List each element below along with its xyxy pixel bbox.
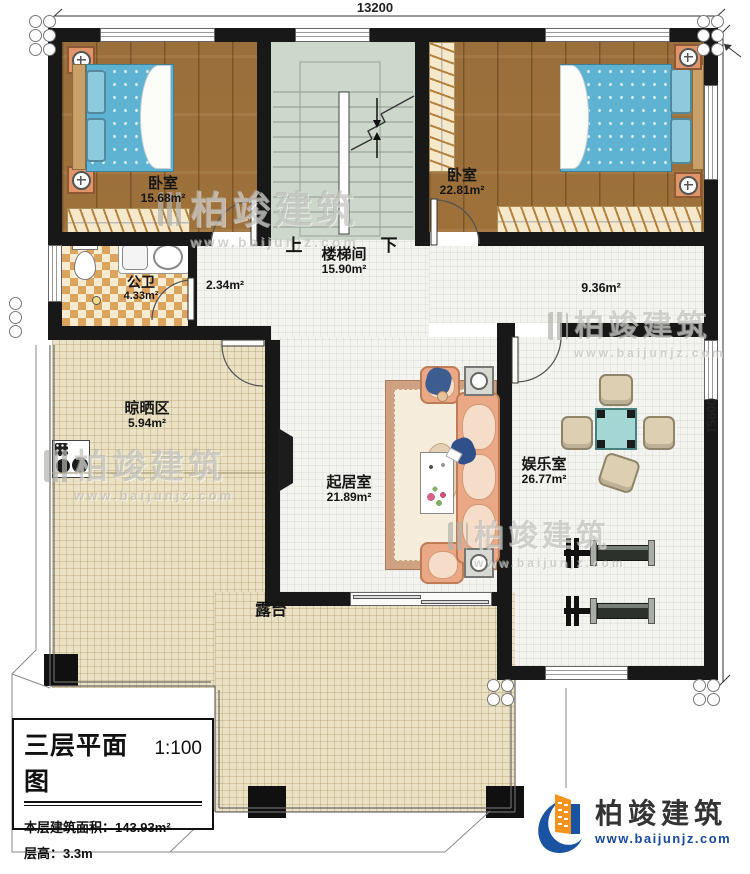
floor-corridor (429, 246, 704, 323)
sofa-cushion (462, 504, 496, 550)
sink (153, 244, 183, 270)
terrace-column (248, 786, 286, 818)
bench-pad (597, 603, 655, 619)
sliding-door (350, 592, 492, 606)
wall (560, 323, 718, 337)
window (545, 28, 670, 42)
wash-basin (122, 244, 148, 270)
chair (561, 416, 593, 450)
side-table (464, 366, 494, 396)
scroll-icon (29, 15, 42, 28)
company-logo: 柏竣建筑 www.baijunjz.com (533, 788, 731, 858)
company-logo-icon (533, 788, 587, 858)
scroll-icon (697, 43, 710, 56)
scroll-icon (697, 15, 710, 28)
room-label-terrace: 露台 (255, 602, 287, 620)
wall (55, 232, 212, 246)
scroll-icon (9, 311, 22, 324)
wall (704, 400, 718, 680)
stair-up-label: 上 (286, 236, 303, 256)
toilet (74, 251, 96, 280)
wall (370, 28, 545, 42)
chair (599, 374, 633, 406)
room-label-bathroom: 公卫 4.33m² (124, 274, 159, 303)
decorative-column (692, 678, 722, 706)
wall (265, 340, 280, 606)
decorative-column (8, 296, 24, 338)
window (704, 340, 718, 400)
wall (257, 28, 271, 246)
window (704, 85, 718, 180)
sofa (456, 392, 500, 564)
area-label-corridor: 9.36m² (581, 281, 621, 295)
bed-headboard (72, 64, 86, 170)
plan-title: 三层平面图 (24, 726, 146, 798)
wall (188, 246, 197, 326)
scroll-icon (697, 29, 710, 42)
company-url: www.baijunjz.com (595, 831, 731, 846)
terrace-column (44, 654, 78, 686)
decorative-column (28, 14, 58, 56)
scroll-icon (711, 43, 724, 56)
wall (48, 326, 271, 340)
lamp-icon (470, 372, 488, 390)
wall (258, 232, 271, 246)
wall (704, 180, 718, 340)
wall (215, 28, 295, 42)
wall (478, 232, 718, 246)
scroll-icon (43, 15, 56, 28)
floor-terrace (215, 592, 515, 812)
pillow (86, 118, 106, 162)
title-underline (24, 801, 202, 806)
company-name: 柏竣建筑 (595, 800, 731, 828)
lamp-icon (679, 48, 698, 67)
washing-machine (52, 440, 90, 478)
scroll-icon (9, 325, 22, 338)
scroll-icon (707, 679, 720, 692)
window (100, 28, 215, 42)
scroll-icon (29, 43, 42, 56)
scroll-icon (707, 693, 720, 706)
floor-area-line: 本层建筑面积：143.93m² (24, 817, 202, 836)
side-table (464, 548, 494, 578)
pillow (670, 68, 692, 114)
room-label-bedroom-left: 卧室 15.68m² (141, 175, 186, 206)
floor-drain (92, 296, 101, 305)
bench-post (648, 540, 655, 566)
terrace-column (486, 786, 524, 818)
dimension-top: 13200 (357, 0, 393, 15)
sliding-door-leaf (353, 595, 421, 599)
scroll-icon (29, 29, 42, 42)
scroll-icon (711, 29, 724, 42)
nightstand (674, 172, 702, 198)
window (48, 245, 62, 302)
scroll-icon (711, 15, 724, 28)
wall (415, 232, 430, 246)
room-label-stairwell: 楼梯间 15.90m² (321, 246, 366, 277)
wall (415, 28, 429, 246)
scroll-icon (693, 679, 706, 692)
pillow (670, 118, 692, 164)
barbell-bar (564, 550, 591, 556)
mahjong-table (595, 408, 637, 450)
tv (278, 428, 293, 492)
title-block: 三层平面图 1:100 本层建筑面积：143.93m² 层高：3.3m (12, 718, 214, 830)
plan-scale: 1:100 (154, 738, 202, 760)
washer-drum (56, 459, 70, 473)
scroll-icon (693, 693, 706, 706)
wardrobe (429, 42, 455, 172)
scroll-icon (501, 679, 514, 692)
room-label-entertainment: 娱乐室 26.77m² (521, 456, 566, 487)
lamp-icon (72, 171, 91, 190)
bench-post (590, 598, 597, 624)
scroll-icon (43, 43, 56, 56)
window (295, 28, 370, 42)
pillow (86, 70, 106, 114)
room-label-bedroom-right: 卧室 22.81m² (440, 167, 485, 198)
bed-blanket (140, 65, 171, 169)
scroll-icon (487, 679, 500, 692)
coffee-table (420, 452, 454, 514)
bench-pad (597, 545, 655, 561)
dimension-right: 15600 (704, 398, 719, 434)
scroll-icon (9, 297, 22, 310)
bench-post (648, 598, 655, 624)
chair-cushion (428, 551, 458, 579)
lamp-icon (470, 554, 488, 572)
chair (643, 416, 675, 450)
decorative-column (696, 14, 726, 56)
scroll-icon (487, 693, 500, 706)
weight-bench (564, 536, 659, 570)
room-label-drying: 晾晒区 5.94m² (124, 400, 169, 431)
room-label-living: 起居室 21.89m² (326, 474, 371, 505)
washer-drum (72, 457, 88, 473)
weight-bench (564, 594, 659, 628)
scroll-icon (43, 29, 56, 42)
floor-height-line: 层高：3.3m (24, 843, 202, 862)
person-head (437, 391, 448, 402)
area-label-hall: 2.34m² (206, 279, 244, 293)
lamp-icon (679, 176, 698, 195)
sliding-door-leaf (421, 600, 489, 604)
scroll-icon (501, 693, 514, 706)
wall (48, 28, 62, 245)
window (545, 666, 628, 680)
barbell-bar (564, 608, 591, 614)
stair-down-label: 下 (381, 236, 398, 256)
floor-stairwell (271, 42, 415, 240)
decorative-column (486, 678, 516, 706)
floor-plan: 柏竣建筑 www.baijunjz.com 柏竣建筑 www.baijunjz.… (0, 0, 750, 874)
bench-post (590, 540, 597, 566)
bed-headboard (692, 64, 704, 170)
washer-knob (55, 443, 68, 456)
